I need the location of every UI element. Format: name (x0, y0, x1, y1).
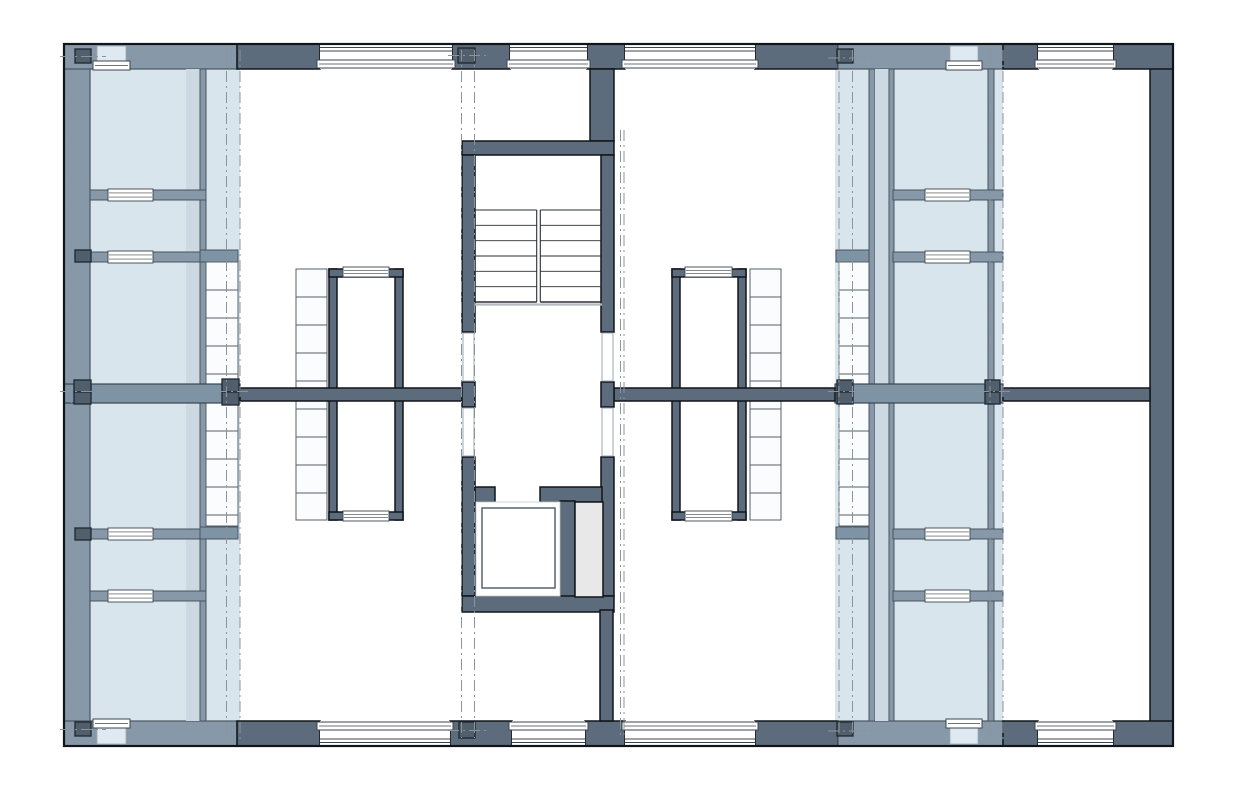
service-duct (575, 502, 603, 597)
mid-wall-west (240, 388, 462, 401)
core-door-east-upper (602, 333, 613, 381)
right-strip-balcony-rail-lower (839, 403, 871, 526)
elevator-jamb-east (540, 487, 602, 502)
column (74, 392, 91, 404)
stair-core-wall-east-b (601, 382, 614, 407)
top-wall-pier-5 (1003, 44, 1038, 69)
top-wall-pier-1 (237, 44, 320, 69)
column (222, 392, 239, 405)
left-strip-balcony-block-top (200, 250, 238, 262)
mid-wall-east (1003, 388, 1150, 401)
bottom-wall-pier-3 (585, 721, 625, 746)
left-strip-window-2 (108, 251, 153, 263)
core-door-west-upper (463, 333, 474, 381)
elevator-divider-wall (560, 501, 575, 597)
column (985, 392, 1000, 404)
top-wall-pier-6 (1113, 44, 1173, 69)
column (75, 250, 91, 262)
right-shaft-opening-north (685, 267, 732, 277)
floor-plan-page (0, 0, 1238, 790)
left-shaft-opening-north (343, 267, 389, 277)
column (75, 528, 91, 540)
floor-plan-canvas (0, 0, 1238, 790)
stair-core-wall-west-a (462, 155, 475, 332)
top-wall-pier-4 (755, 44, 838, 69)
right-strip-window-3 (925, 528, 970, 540)
right-shaft-opening-south (685, 511, 732, 521)
right-strip-window-1 (925, 189, 970, 201)
stair-core-wall-west-b (462, 382, 475, 407)
party-wall-top (590, 69, 614, 141)
bottom-wall-pier-1 (237, 721, 320, 746)
column (74, 380, 91, 392)
core-door-east-lower (602, 408, 613, 456)
elevator-car (476, 502, 560, 596)
column (985, 380, 1000, 392)
right-strip-balcony-rail-upper (839, 262, 871, 384)
left-strip-window-4 (108, 590, 153, 602)
left-strip-window-1 (108, 189, 153, 201)
bottom-wall-pier-5 (1003, 721, 1038, 746)
left-strip-balcony-block-bottom (200, 527, 238, 539)
right-strip-window-4 (925, 590, 970, 602)
left-strip-balcony-rail-lower (206, 403, 238, 526)
right-strip-mid-wall (835, 384, 1003, 403)
stair-core-wall-west-c (462, 457, 475, 596)
left-shaft-opening-south (343, 511, 389, 521)
right-exterior-wall (1150, 44, 1173, 746)
mid-wall-center-east (614, 388, 835, 401)
left-strip-balcony-rail-upper (206, 262, 238, 384)
core-door-west-lower (463, 408, 474, 456)
column (222, 379, 239, 392)
right-strip-window-2 (925, 251, 970, 263)
bottom-wall-pier-4 (755, 721, 838, 746)
left-strip-window-3 (108, 528, 153, 540)
party-wall-bottom (600, 610, 613, 721)
core-wall-south (462, 596, 614, 612)
stair-core-wall-north (462, 141, 614, 155)
bottom-wall-pier-6 (1113, 721, 1173, 746)
top-wall-pier-3 (587, 44, 625, 69)
elevator-jamb-west (475, 487, 495, 502)
stair-core-wall-east-a (601, 155, 614, 332)
